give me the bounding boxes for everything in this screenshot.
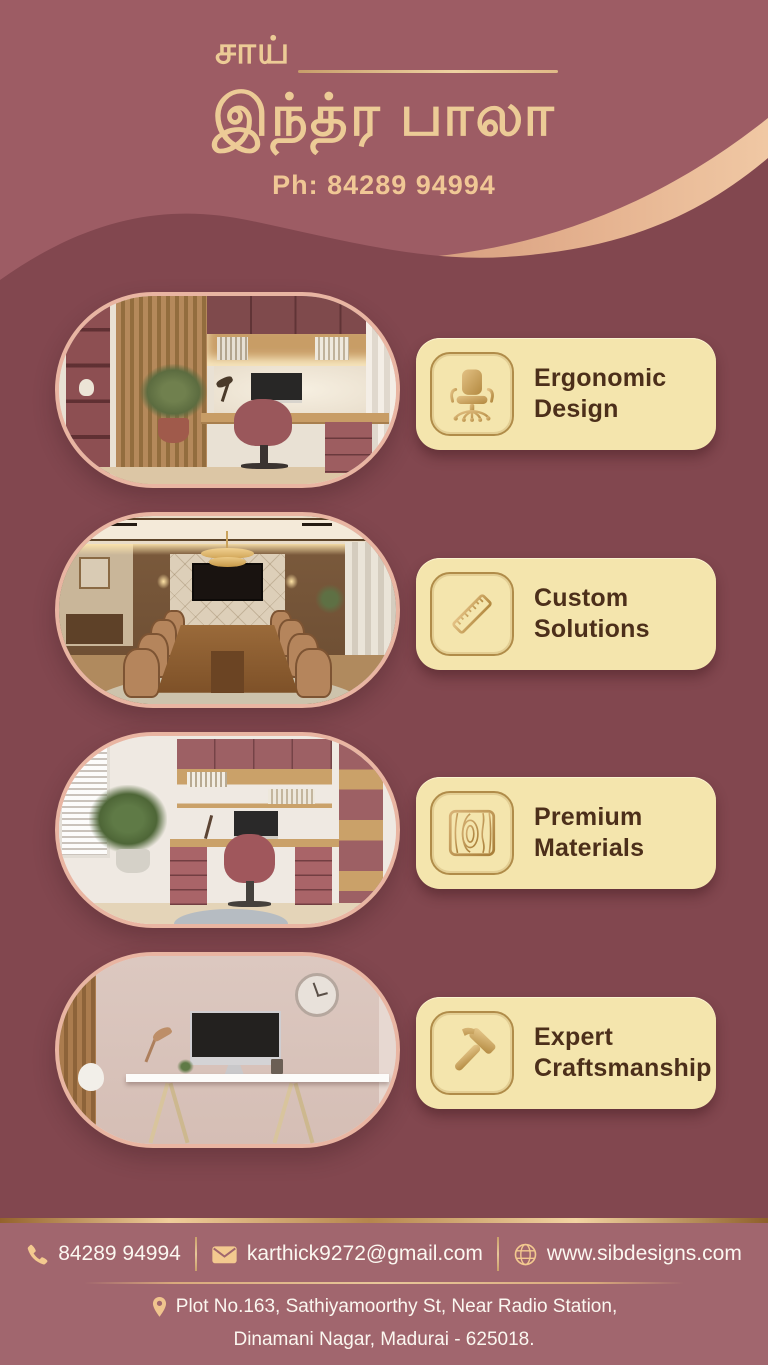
- contact-divider: [497, 1237, 499, 1271]
- footer-gold-divider: [0, 1218, 768, 1223]
- trestle-desk: [126, 1074, 389, 1082]
- sideboard: [66, 614, 123, 644]
- wall-clock: [295, 973, 339, 1017]
- wood-grain-icon: [430, 791, 514, 875]
- desktop-computer: [190, 1011, 281, 1066]
- header-wave-background: [0, 0, 768, 320]
- office-chair: [224, 834, 275, 883]
- footer-phone: 84289 94994: [26, 1242, 181, 1266]
- feature-label: Premium Materials: [534, 777, 712, 889]
- feature-label: Expert Craftsmanship: [534, 997, 712, 1109]
- footer: 84289 94994 karthick9272@gmail.com: [0, 1223, 768, 1365]
- header-phone: Ph: 84289 94994: [0, 170, 768, 201]
- light-home-office-scene: [59, 736, 396, 924]
- feature-expert-craftsmanship: Expert Craftsmanship: [416, 997, 716, 1109]
- ruler-icon: [430, 572, 514, 656]
- footer-website[interactable]: www.sibdesigns.com: [513, 1242, 742, 1267]
- location-pin-icon: [151, 1296, 168, 1318]
- drawer-unit: [325, 422, 372, 473]
- globe-icon: [513, 1242, 538, 1267]
- wall-tv: [194, 565, 261, 599]
- tall-cabinet: [339, 739, 383, 908]
- envelope-icon: [211, 1241, 238, 1268]
- plant: [89, 785, 167, 853]
- upper-cabinets: [177, 739, 332, 769]
- brand-name-top: சாய்: [215, 30, 290, 78]
- feature-custom-solutions: Custom Solutions: [416, 558, 716, 670]
- vase: [78, 1063, 105, 1091]
- photo-card-minimal-desk: [55, 952, 400, 1148]
- feature-label: Custom Solutions: [534, 558, 712, 670]
- minimal-desk-scene: [59, 956, 396, 1144]
- photo-card-conference-room: [55, 512, 400, 708]
- poster: சாய் இந்த்ர பாலா Ph: 84289 94994: [0, 0, 768, 1365]
- address-divider: [84, 1282, 684, 1284]
- address-line-1: Plot No.163, Sathiyamoorthy St, Near Rad…: [176, 1293, 617, 1321]
- address-line-2: Dinamani Nagar, Madurai - 625018.: [0, 1326, 768, 1354]
- maroon-home-office-scene: [59, 296, 396, 484]
- office-chair-icon: [430, 352, 514, 436]
- conference-room-scene: [59, 516, 396, 704]
- address-block: Plot No.163, Sathiyamoorthy St, Near Rad…: [0, 1293, 768, 1354]
- hammer-icon: [430, 1011, 514, 1095]
- brand-name-main: இந்த்ர பாலா: [0, 82, 768, 157]
- footer-email[interactable]: karthick9272@gmail.com: [211, 1241, 483, 1268]
- plant: [140, 364, 207, 420]
- feature-premium-materials: Premium Materials: [416, 777, 716, 889]
- feature-ergonomic-design: Ergonomic Design: [416, 338, 716, 450]
- desk: [201, 413, 390, 422]
- photo-card-maroon-home-office: [55, 292, 400, 488]
- phone-icon: [26, 1243, 49, 1266]
- feature-label: Ergonomic Design: [534, 338, 712, 450]
- contact-row: 84289 94994 karthick9272@gmail.com: [0, 1237, 768, 1271]
- wall-art: [79, 557, 109, 589]
- photo-card-light-home-office: [55, 732, 400, 928]
- office-chair: [234, 399, 291, 446]
- wood-slat-panel: [59, 956, 96, 1144]
- title-underline: [298, 70, 558, 73]
- upper-cabinets: [207, 296, 386, 334]
- contact-divider: [195, 1237, 197, 1271]
